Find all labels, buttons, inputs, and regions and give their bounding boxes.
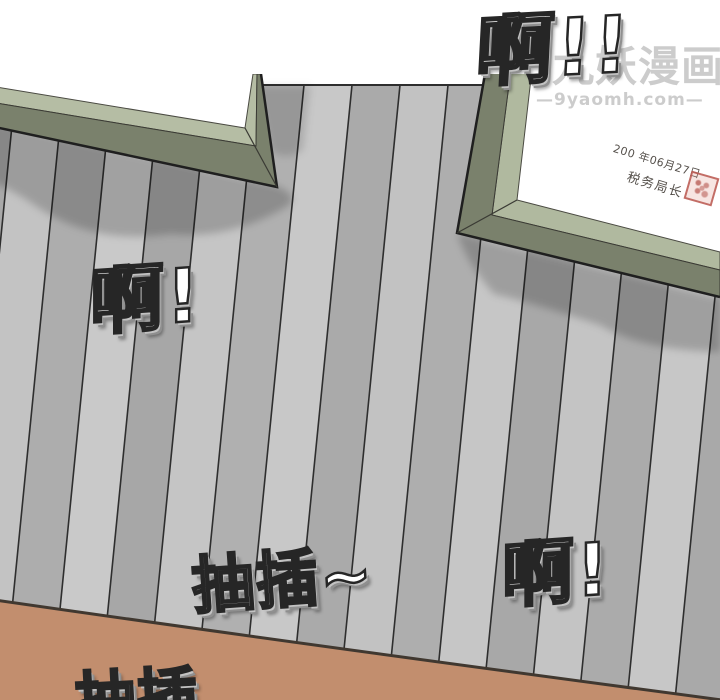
sfx-moan-top: 啊!! (474, 6, 633, 92)
official-seal (684, 171, 720, 207)
watermark-site-url: —9yaomh.com— (536, 92, 704, 109)
sfx-moan-bottom-right: 啊! (502, 532, 611, 612)
seal-glyphs (689, 176, 715, 202)
comic-panel: 九妖漫画 —9yaomh.com— 200 年06月27日 税务局长 啊!! 啊… (0, 0, 720, 700)
certificate-date: 200 年06月27日 (612, 143, 702, 180)
text-overlay: 九妖漫画 —9yaomh.com— 200 年06月27日 税务局长 啊!! 啊… (0, 0, 720, 700)
sfx-moan-left: 啊! (90, 258, 201, 340)
sfx-thrust-partial: 抽插 (74, 666, 201, 700)
sfx-thrust: 抽插~ (190, 543, 376, 618)
certificate-signer: 税务局长 (625, 171, 684, 200)
